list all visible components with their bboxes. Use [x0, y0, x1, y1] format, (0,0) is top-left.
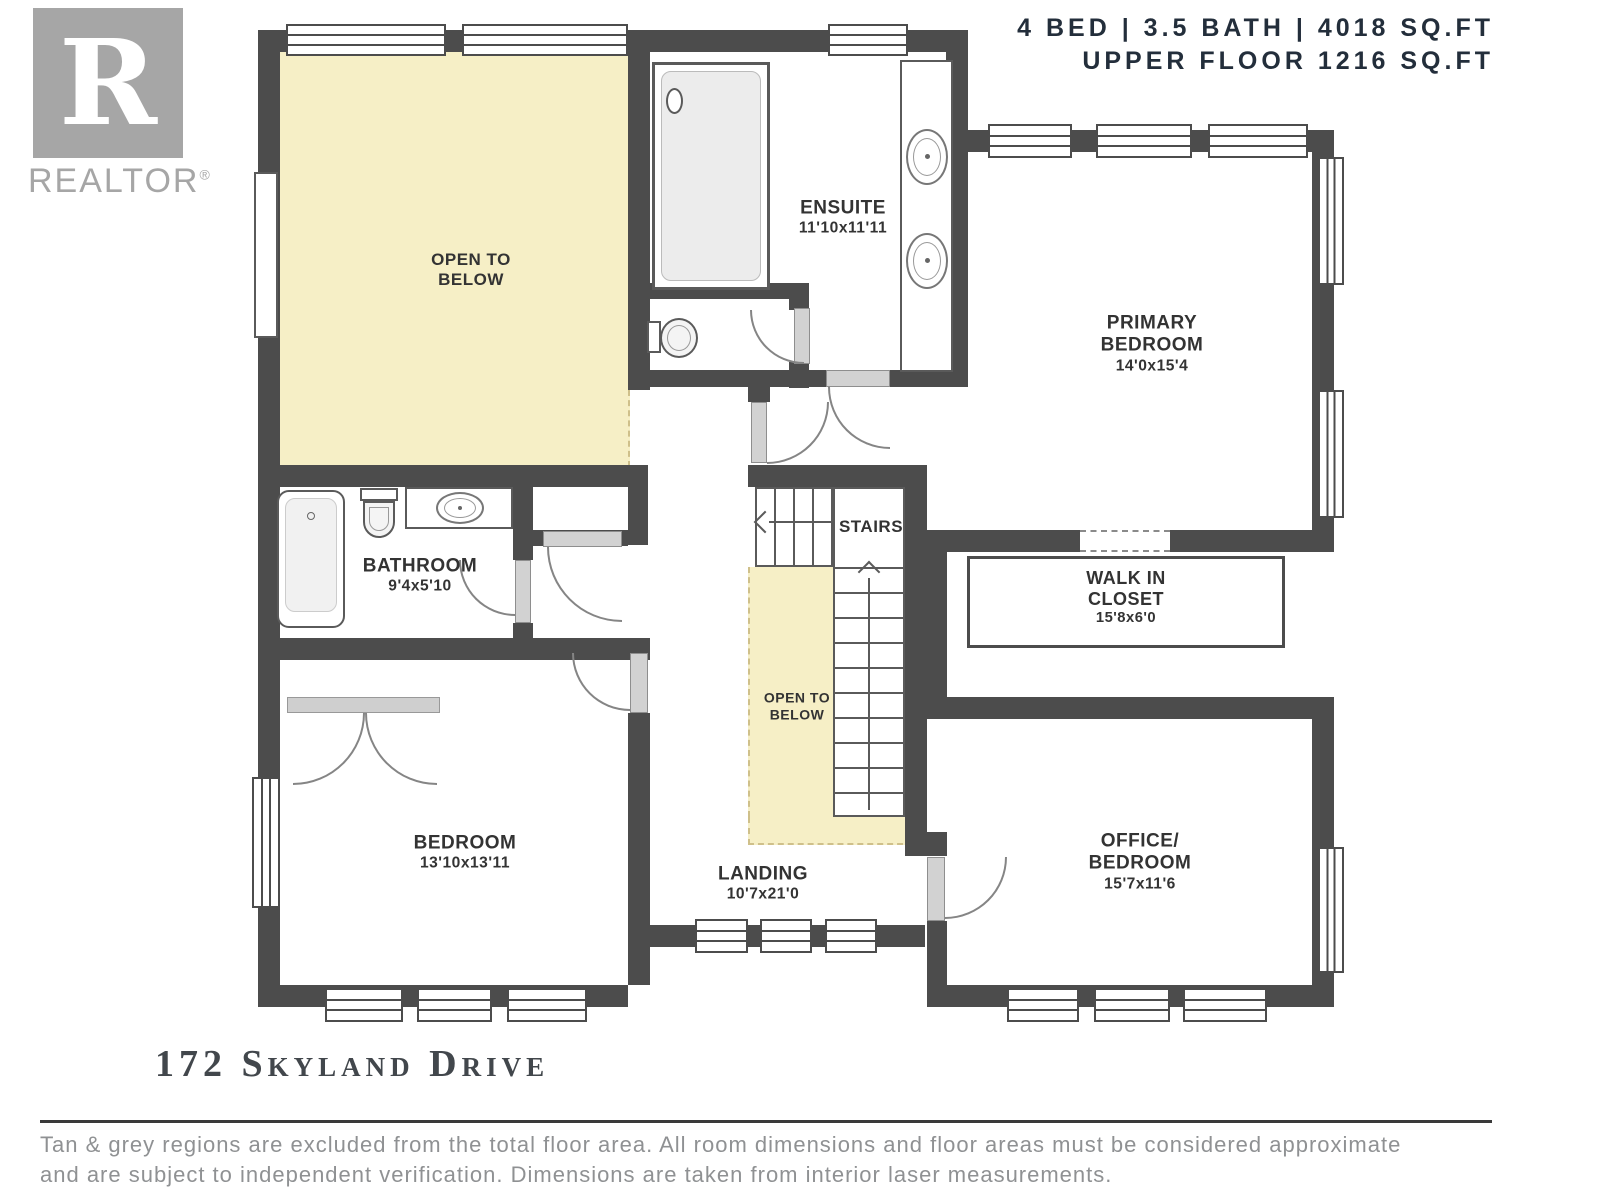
label-bedroom: BEDROOM13'10x13'11: [414, 833, 517, 874]
label-line: STAIRS: [839, 517, 903, 537]
stairwell-open-to-below-region: [748, 817, 913, 845]
shower-drain: [666, 88, 683, 114]
wall: [925, 697, 1334, 719]
label-ensuite: ENSUITE11'10x11'11: [799, 198, 887, 239]
wall: [628, 713, 650, 985]
floor-plan: OPEN TOBELOWENSUITE11'10x11'11PRIMARYBED…: [0, 0, 1600, 1200]
label-line: 14'0x15'4: [1101, 357, 1204, 375]
wall: [513, 487, 533, 560]
label-open-to-below-main: OPEN TOBELOW: [431, 250, 511, 290]
wall: [748, 465, 927, 487]
label-line: ENSUITE: [799, 198, 887, 220]
office-door-swing: [945, 857, 1007, 919]
stairs-left-arrow-shaft: [769, 521, 831, 523]
label-line: BELOW: [764, 706, 830, 723]
chimney-inset: [254, 172, 278, 338]
window: [417, 988, 492, 1022]
wall: [1170, 530, 1334, 552]
toilet-tank: [647, 321, 661, 353]
office-door-leaf: [927, 857, 945, 921]
label-line: 15'7x11'6: [1089, 875, 1192, 893]
window: [1318, 157, 1344, 285]
window: [760, 919, 812, 953]
disclaimer: Tan & grey regions are excluded from the…: [40, 1130, 1401, 1190]
disclaimer-line-2: and are subject to independent verificat…: [40, 1160, 1401, 1190]
stair-winder-line: [793, 489, 795, 565]
window: [1007, 988, 1079, 1022]
label-open-to-below-stairs: OPEN TOBELOW: [764, 689, 830, 722]
stair-winder-line: [812, 489, 814, 565]
wall: [628, 370, 826, 387]
window: [325, 988, 403, 1022]
closet-opening-dashed: [1080, 530, 1170, 552]
window: [252, 777, 280, 908]
label-line: BEDROOM: [1101, 335, 1204, 357]
label-line: PRIMARY: [1101, 312, 1204, 334]
label-line: OPEN TO: [764, 689, 830, 706]
toilet-bowl-inner: [667, 325, 691, 351]
label-bathroom: BATHROOM9'4x5'10: [363, 556, 477, 597]
wc-door-swing: [750, 310, 804, 364]
stair-winder-line: [774, 489, 776, 565]
label-line: WALK IN: [1086, 568, 1166, 589]
label-line: 13'10x13'11: [414, 855, 517, 873]
window: [1208, 124, 1308, 158]
vanity-counter: [900, 60, 953, 372]
closet-shelf: [287, 697, 440, 713]
label-line: CLOSET: [1086, 589, 1166, 610]
window: [462, 24, 628, 56]
label-line: BELOW: [431, 270, 511, 290]
label-stairs: STAIRS: [839, 517, 903, 537]
disclaimer-line-1: Tan & grey regions are excluded from the…: [40, 1130, 1401, 1160]
window: [695, 919, 748, 953]
ensuite-door-leaf: [826, 370, 890, 387]
window: [1094, 988, 1170, 1022]
window: [825, 919, 877, 953]
linen-closet-door-leaf: [543, 531, 622, 547]
hall-door-swing: [767, 402, 829, 464]
toilet-tank: [360, 488, 398, 501]
label-line: 15'8x6'0: [1086, 611, 1166, 628]
wall: [789, 283, 809, 310]
wall: [927, 921, 947, 1007]
label-walk-in-closet: WALK INCLOSET15'8x6'0: [1086, 568, 1166, 628]
closet-french-door-swing: [365, 713, 437, 785]
bathroom-door-leaf: [515, 560, 531, 623]
window: [988, 124, 1072, 158]
stairs-up-arrow-shaft: [868, 578, 870, 810]
label-line: 9'4x5'10: [363, 578, 477, 596]
label-line: 10'7x21'0: [718, 886, 808, 904]
window: [828, 24, 908, 56]
hall-door-leaf: [751, 402, 767, 463]
window: [1096, 124, 1192, 158]
bedroom-door-swing: [572, 653, 630, 711]
window: [1183, 988, 1267, 1022]
open-to-below-edge-dashed: [626, 390, 630, 467]
window: [1318, 847, 1344, 973]
label-line: OFFICE/: [1089, 830, 1192, 852]
wall: [258, 465, 648, 487]
label-line: BEDROOM: [1089, 853, 1192, 875]
wall: [925, 530, 947, 719]
footer-divider: [40, 1120, 1492, 1123]
label-landing: LANDING10'7x21'0: [718, 864, 808, 905]
label-line: BATHROOM: [363, 556, 477, 578]
wall: [905, 465, 927, 835]
label-line: 11'10x11'11: [799, 220, 887, 238]
window: [286, 24, 446, 56]
wall: [890, 370, 968, 387]
toilet-bowl-inner: [369, 507, 389, 531]
wall: [628, 465, 648, 545]
property-title: 172 Skyland Drive: [155, 1042, 549, 1086]
sink-drain: [925, 258, 930, 263]
wall: [905, 832, 947, 856]
window: [1318, 390, 1344, 518]
bathtub-drain: [307, 512, 315, 520]
closet-french-door-swing: [293, 713, 365, 785]
sink-drain: [925, 154, 930, 159]
window: [507, 988, 587, 1022]
label-office-bedroom: OFFICE/BEDROOM15'7x11'6: [1089, 830, 1192, 893]
sink-drain: [458, 506, 462, 510]
label-primary-bedroom: PRIMARYBEDROOM14'0x15'4: [1101, 312, 1204, 375]
bedroom-door-leaf: [630, 653, 648, 713]
linen-closet-door-swing: [547, 547, 622, 622]
label-line: OPEN TO: [431, 250, 511, 270]
ensuite-door-swing: [828, 387, 890, 449]
wall: [513, 623, 533, 638]
wall: [748, 378, 770, 402]
label-line: BEDROOM: [414, 833, 517, 855]
label-line: LANDING: [718, 864, 808, 886]
